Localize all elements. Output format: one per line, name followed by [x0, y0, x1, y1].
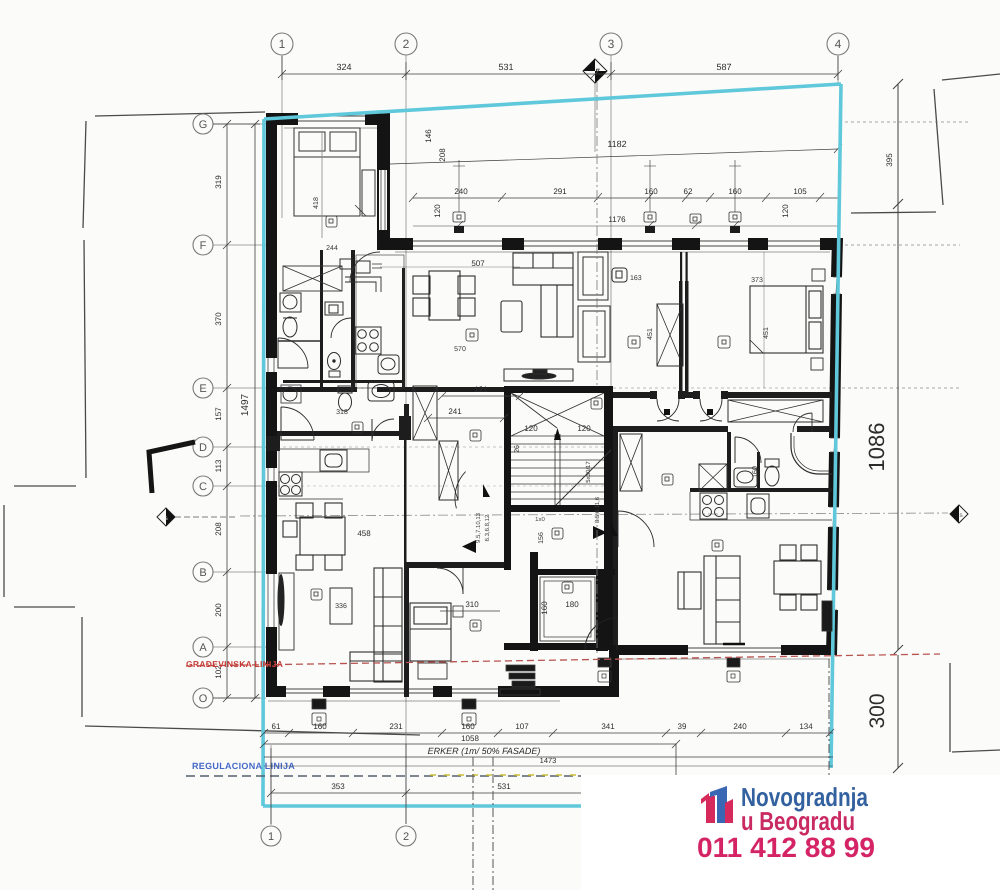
svg-text:A: A [199, 642, 207, 654]
svg-text:531: 531 [497, 782, 511, 791]
svg-text:134: 134 [799, 722, 813, 731]
svg-text:O: O [199, 693, 208, 705]
svg-text:F: F [200, 240, 207, 252]
svg-text:241: 241 [448, 407, 462, 416]
svg-text:418: 418 [313, 197, 320, 209]
svg-text:163: 163 [630, 275, 642, 282]
svg-text:341: 341 [601, 722, 615, 731]
svg-text:451: 451 [647, 328, 654, 340]
svg-text:62: 62 [684, 187, 693, 196]
svg-text:8.5,6.11,6: 8.5,6.11,6 [594, 496, 601, 523]
svg-text:240: 240 [733, 722, 747, 731]
svg-text:2: 2 [403, 831, 409, 843]
svg-text:1473: 1473 [540, 756, 557, 765]
svg-text:231: 231 [389, 722, 403, 731]
svg-text:D: D [199, 442, 207, 454]
svg-text:244: 244 [326, 245, 338, 252]
svg-text:C: C [199, 481, 207, 493]
svg-text:160: 160 [644, 187, 658, 196]
svg-text:570: 570 [454, 346, 466, 353]
svg-text:1086: 1086 [864, 423, 889, 472]
svg-text:353: 353 [331, 782, 345, 791]
svg-text:1: 1 [279, 37, 286, 51]
svg-text:531: 531 [498, 62, 513, 72]
svg-text:300: 300 [866, 693, 889, 728]
svg-text:587: 587 [716, 62, 731, 72]
svg-text:319: 319 [214, 175, 223, 189]
svg-text:1058: 1058 [461, 734, 479, 743]
svg-text:6.3,6.8,12: 6.3,6.8,12 [484, 514, 491, 541]
svg-text:318: 318 [336, 409, 348, 416]
svg-text:105: 105 [793, 187, 807, 196]
svg-text:26: 26 [514, 445, 521, 453]
svg-text:120: 120 [577, 424, 591, 433]
svg-text:160: 160 [313, 722, 327, 731]
svg-text:146: 146 [424, 129, 433, 143]
svg-text:336: 336 [335, 603, 347, 610]
svg-text:G: G [199, 119, 208, 131]
svg-text:324: 324 [336, 62, 351, 72]
svg-text:61: 61 [272, 722, 281, 731]
svg-text:180: 180 [565, 600, 579, 609]
svg-text:458: 458 [357, 529, 371, 538]
svg-text:120: 120 [433, 204, 442, 218]
svg-text:291: 291 [553, 187, 567, 196]
svg-text:208: 208 [214, 522, 223, 536]
svg-text:395: 395 [885, 153, 894, 167]
svg-text:GRAĐEVINSKA LINIJA: GRAĐEVINSKA LINIJA [186, 659, 283, 669]
svg-text:1497: 1497 [240, 393, 251, 416]
svg-text:113: 113 [214, 459, 223, 472]
svg-text:160: 160 [461, 722, 475, 731]
svg-text:156: 156 [538, 532, 545, 544]
svg-text:011 412 88 99: 011 412 88 99 [697, 832, 875, 863]
svg-text:160: 160 [540, 601, 549, 615]
svg-text:160: 160 [752, 466, 759, 478]
svg-text:451: 451 [763, 327, 770, 339]
svg-text:39: 39 [678, 722, 687, 731]
svg-text:9.5,7.10,13: 9.5,7.10,13 [475, 512, 482, 543]
svg-text:1: 1 [268, 831, 274, 843]
svg-text:310: 310 [465, 600, 479, 609]
svg-text:373: 373 [751, 277, 763, 284]
svg-text:4: 4 [835, 37, 842, 51]
svg-text:1x0: 1x0 [535, 516, 545, 523]
svg-text:240: 240 [454, 187, 468, 196]
svg-text:1182: 1182 [607, 139, 626, 149]
svg-text:208: 208 [438, 148, 447, 162]
svg-text:370: 370 [214, 312, 223, 326]
svg-text:5: 5 [595, 67, 600, 77]
svg-text:B: B [199, 567, 206, 579]
svg-text:120: 120 [781, 204, 790, 218]
svg-text:5x30/17: 5x30/17 [585, 461, 592, 483]
svg-text:3: 3 [608, 37, 615, 51]
svg-text:507: 507 [471, 259, 485, 268]
svg-text:107: 107 [515, 722, 529, 731]
svg-text:120: 120 [524, 424, 538, 433]
svg-text:E: E [199, 383, 206, 395]
svg-text:2: 2 [403, 37, 410, 51]
svg-text:121: 121 [474, 385, 488, 394]
svg-text:200: 200 [214, 603, 223, 617]
svg-text:1176: 1176 [608, 215, 626, 224]
svg-text:ERKER (1m/ 50% FASADE): ERKER (1m/ 50% FASADE) [428, 746, 541, 756]
svg-text:157: 157 [214, 407, 223, 421]
